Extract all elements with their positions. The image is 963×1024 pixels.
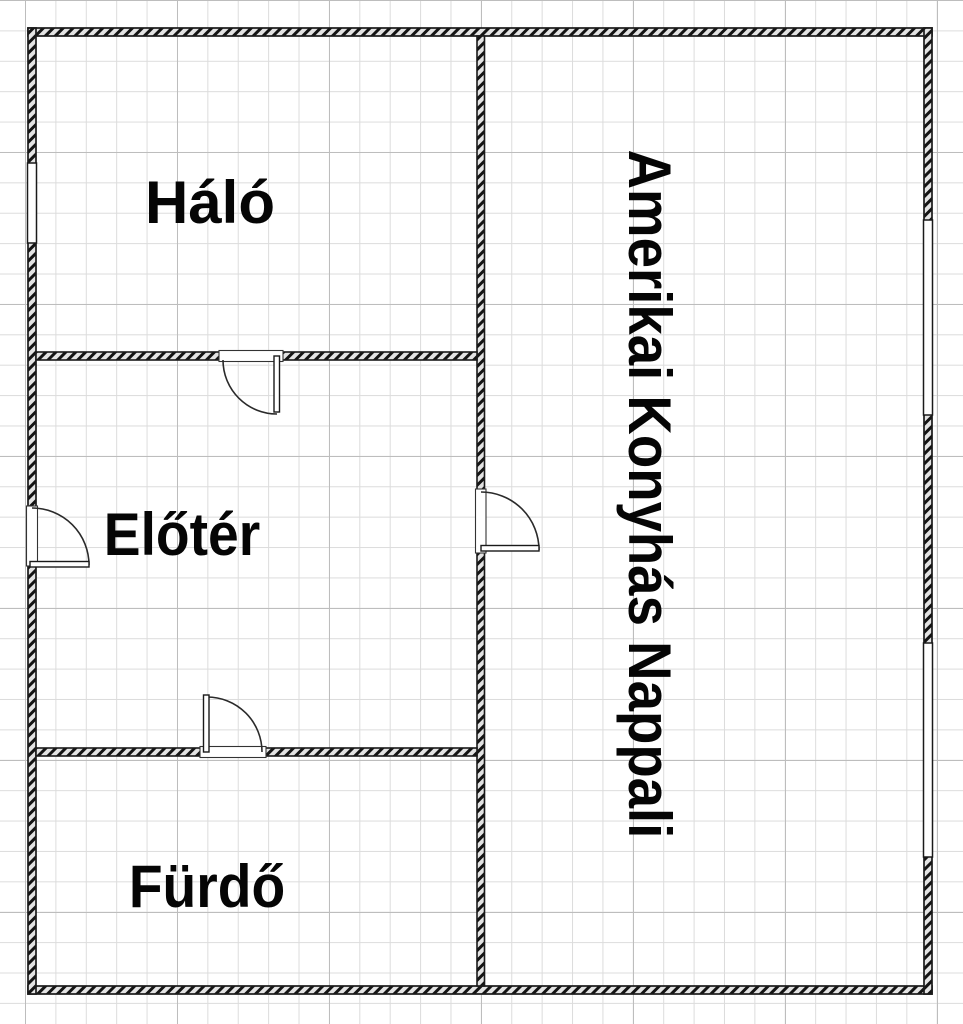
door-entrance xyxy=(27,506,90,567)
door-halo-leaf xyxy=(274,356,280,412)
door-entrance-arc xyxy=(32,508,89,565)
wall-bottom xyxy=(28,986,932,994)
door-furdo xyxy=(200,695,266,758)
wall-top xyxy=(28,28,932,36)
door-furdo-arc xyxy=(207,697,262,752)
room-label-nappali: Amerikai Konyhás Nappali xyxy=(619,150,679,839)
window-left xyxy=(28,163,37,243)
door-halo-arc xyxy=(223,360,277,414)
door-nappali-opening xyxy=(476,489,487,553)
door-entrance-opening xyxy=(27,506,38,566)
window-right-upper xyxy=(924,220,933,415)
door-nappali-arc xyxy=(481,492,539,550)
floorplan-canvas: Háló Előtér Fürdő Amerikai Konyhás Nappa… xyxy=(0,0,963,1024)
room-label-eloter: Előtér xyxy=(104,505,260,565)
door-nappali xyxy=(476,489,540,553)
window-right-lower xyxy=(924,643,933,857)
door-furdo-leaf xyxy=(204,695,210,752)
door-entrance-leaf xyxy=(30,562,89,568)
room-label-halo: Háló xyxy=(145,173,275,233)
room-label-furdo: Fürdő xyxy=(129,857,285,917)
door-nappali-leaf xyxy=(481,546,539,552)
door-furdo-opening xyxy=(200,747,266,758)
door-halo xyxy=(219,351,283,415)
